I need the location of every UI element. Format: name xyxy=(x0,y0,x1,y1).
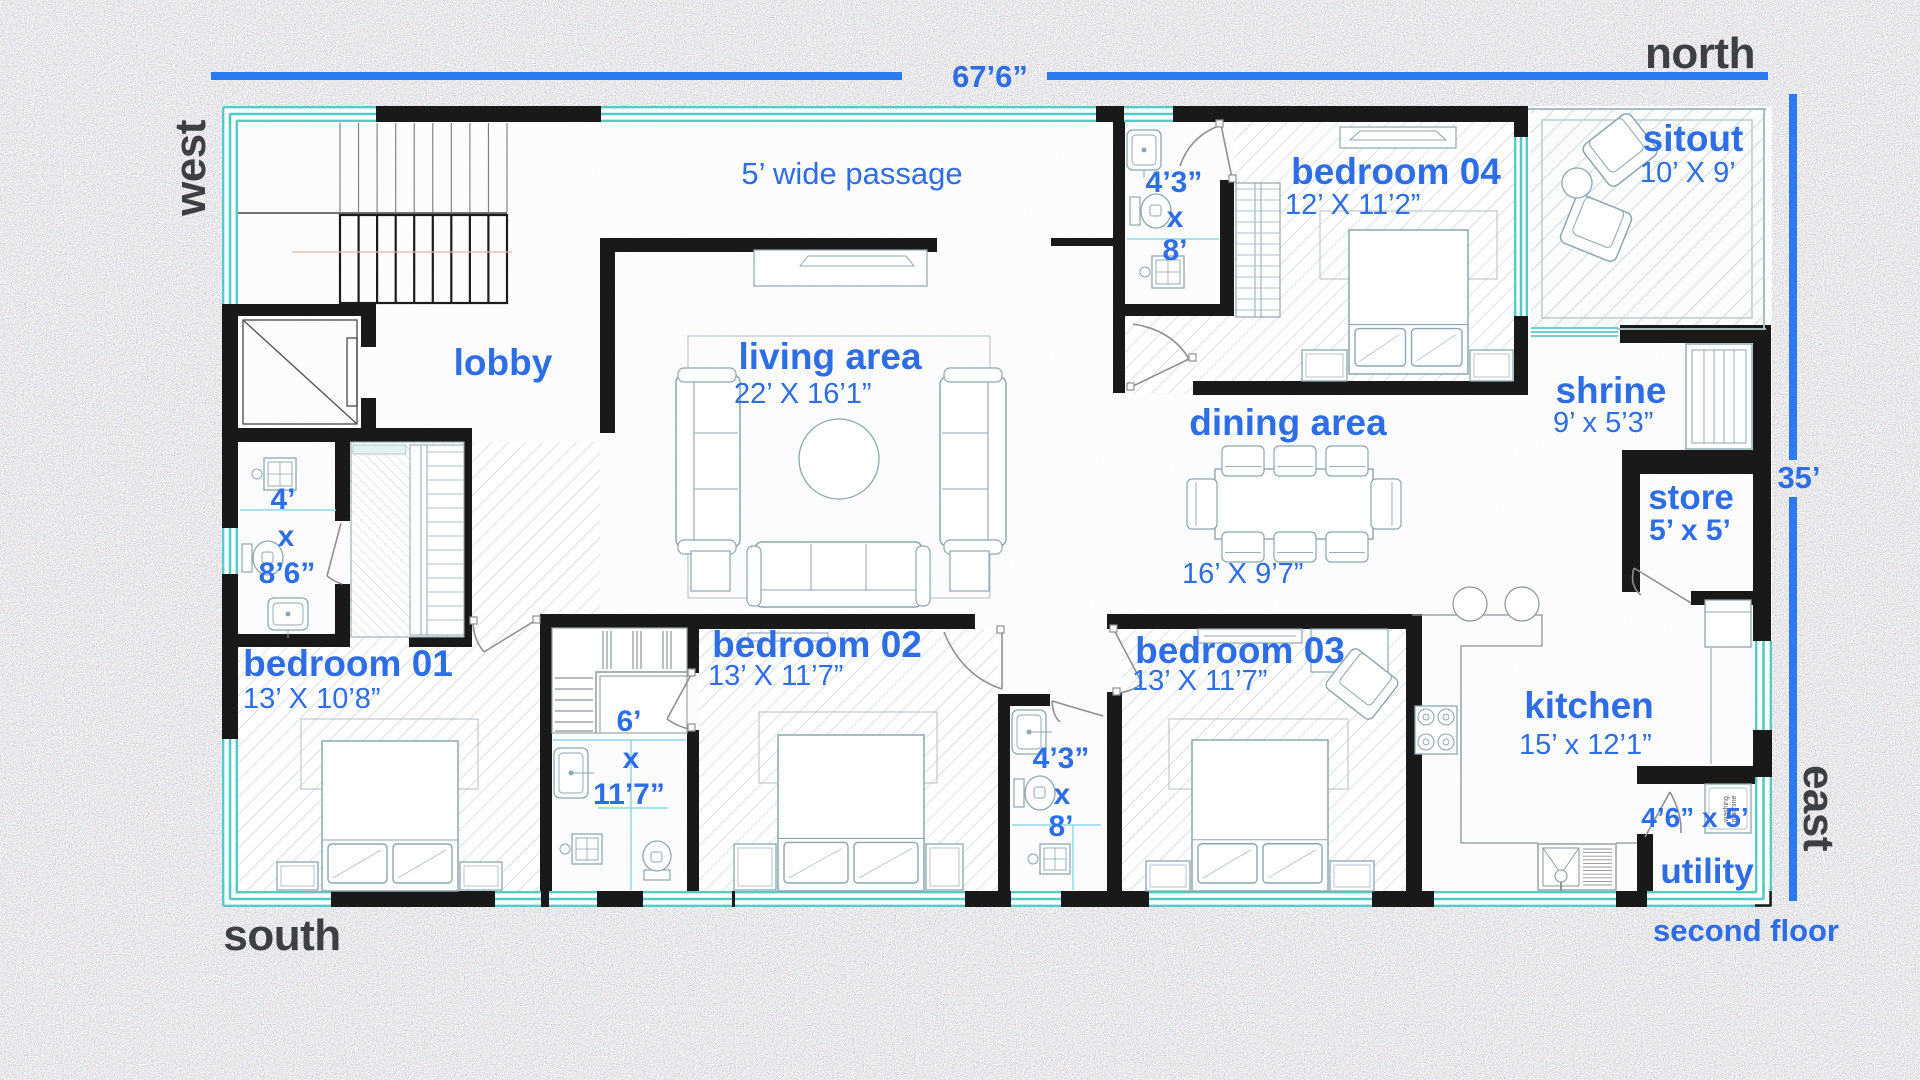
svg-text:bedroom 04: bedroom 04 xyxy=(1291,151,1501,192)
svg-text:second floor: second floor xyxy=(1653,913,1839,948)
svg-text:13’ X 10’8”: 13’ X 10’8” xyxy=(243,683,381,715)
svg-text:x: x xyxy=(623,742,640,775)
svg-text:10’ X 9’: 10’ X 9’ xyxy=(1640,157,1736,189)
svg-text:13’ X 11’7”: 13’ X 11’7” xyxy=(1132,665,1267,697)
svg-text:5’ x 5’: 5’ x 5’ xyxy=(1649,514,1731,547)
svg-text:67’6”: 67’6” xyxy=(952,59,1028,94)
svg-text:x: x xyxy=(1054,778,1071,811)
svg-text:utility: utility xyxy=(1660,852,1754,891)
svg-text:bedroom 01: bedroom 01 xyxy=(243,643,453,684)
svg-text:11’7”: 11’7” xyxy=(593,778,665,811)
svg-text:15’ x 12’1”: 15’ x 12’1” xyxy=(1519,729,1652,761)
svg-text:north: north xyxy=(1645,29,1755,78)
svg-text:south: south xyxy=(223,911,340,960)
svg-text:store: store xyxy=(1648,478,1734,517)
svg-text:4’3”: 4’3” xyxy=(1146,166,1203,199)
svg-text:dining area: dining area xyxy=(1189,402,1387,443)
svg-text:8’: 8’ xyxy=(1162,234,1187,267)
svg-text:4’3”: 4’3” xyxy=(1033,742,1090,775)
svg-text:22’ X 16’1”: 22’ X 16’1” xyxy=(734,378,872,410)
svg-text:13’ X 11’7”: 13’ X 11’7” xyxy=(708,660,843,692)
svg-text:12’ X 11’2”: 12’ X 11’2” xyxy=(1285,189,1420,221)
svg-text:35’: 35’ xyxy=(1777,460,1820,495)
svg-text:east: east xyxy=(1794,765,1843,852)
svg-text:9’ x 5’3”: 9’ x 5’3” xyxy=(1553,407,1653,439)
svg-text:sitout: sitout xyxy=(1643,118,1744,159)
svg-text:living area: living area xyxy=(738,336,921,377)
svg-text:x: x xyxy=(1167,201,1184,234)
svg-text:6’: 6’ xyxy=(616,705,641,738)
svg-text:lobby: lobby xyxy=(454,342,553,383)
svg-text:16’ X 9’7”: 16’ X 9’7” xyxy=(1182,558,1303,590)
svg-text:shrine: shrine xyxy=(1555,370,1666,411)
svg-text:4’6” x 5’: 4’6” x 5’ xyxy=(1641,802,1748,833)
svg-text:8’: 8’ xyxy=(1048,810,1073,843)
svg-text:bedroom 02: bedroom 02 xyxy=(712,624,922,665)
svg-text:5’ wide passage: 5’ wide passage xyxy=(741,156,962,191)
svg-text:west: west xyxy=(166,119,215,217)
svg-text:kitchen: kitchen xyxy=(1524,685,1654,726)
svg-text:x: x xyxy=(278,520,295,553)
svg-text:8’6”: 8’6” xyxy=(259,557,316,590)
svg-text:4’: 4’ xyxy=(270,483,295,516)
